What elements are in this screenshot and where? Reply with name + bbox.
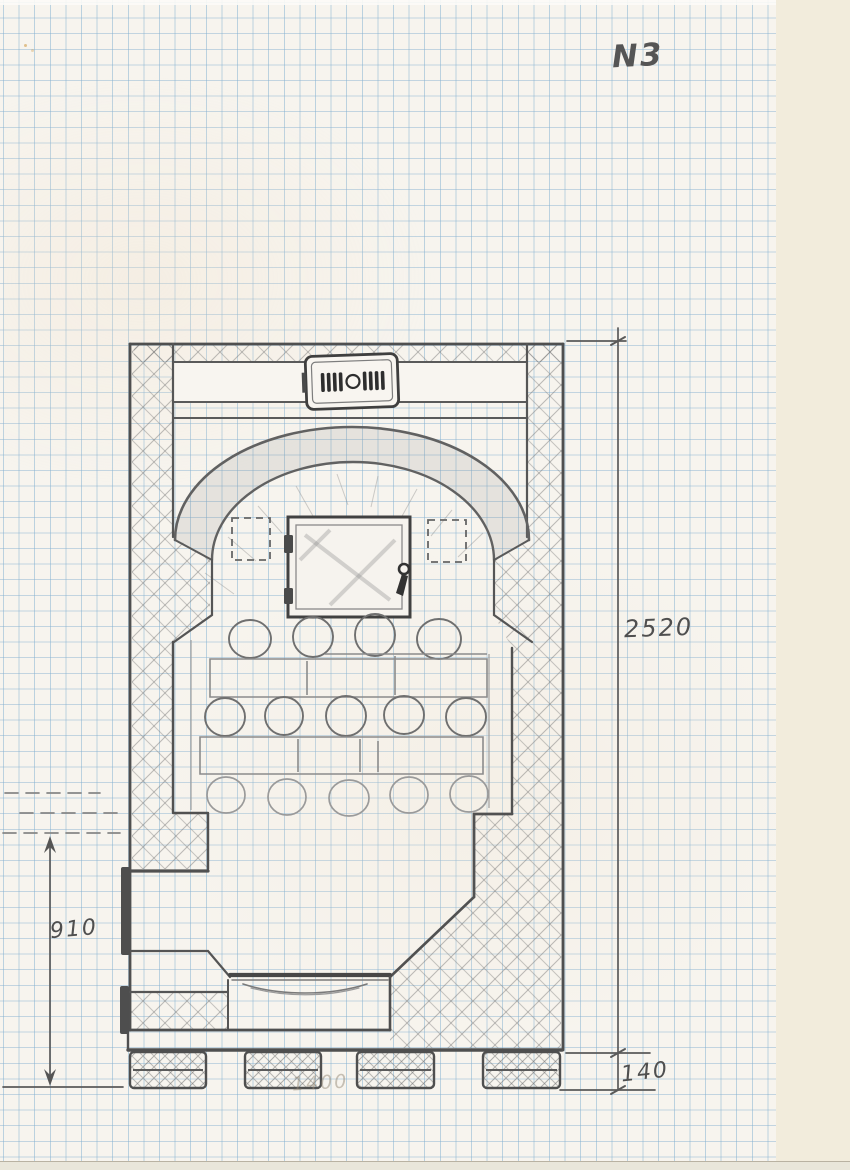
fire-door-handle-knob [399, 564, 409, 574]
brick-course-2 [200, 737, 483, 774]
fire-door [284, 517, 410, 617]
cleanout-doors [120, 867, 130, 1034]
stone-row-1 [229, 614, 461, 659]
erased-dimension-label: 1400 [291, 1071, 348, 1096]
foot [483, 1052, 560, 1088]
cleanout-door-upper [121, 867, 130, 955]
foot [357, 1052, 434, 1088]
dimension-label-overall-height: 2520 [624, 613, 694, 643]
stone-row-3 [207, 776, 488, 816]
dimension-label-base-height: 140 [620, 1058, 670, 1088]
fire-door-hinge-top [284, 535, 293, 553]
vent-door [301, 353, 399, 409]
stove-plan-drawing [0, 0, 850, 1169]
cleanout-door-lower [120, 986, 129, 1034]
stone-row-2 [205, 696, 486, 736]
dimension-label-opening-height: 910 [49, 915, 99, 944]
foot [130, 1052, 206, 1088]
hearth-dish [243, 984, 367, 993]
vent-door-latch [302, 373, 307, 393]
fire-door-hinge-bottom [284, 588, 293, 604]
projection-dashed-lines [3, 793, 125, 833]
brick-course-1 [210, 654, 487, 697]
stone-fill [191, 614, 489, 816]
sheet-number-label: N3 [611, 37, 664, 76]
